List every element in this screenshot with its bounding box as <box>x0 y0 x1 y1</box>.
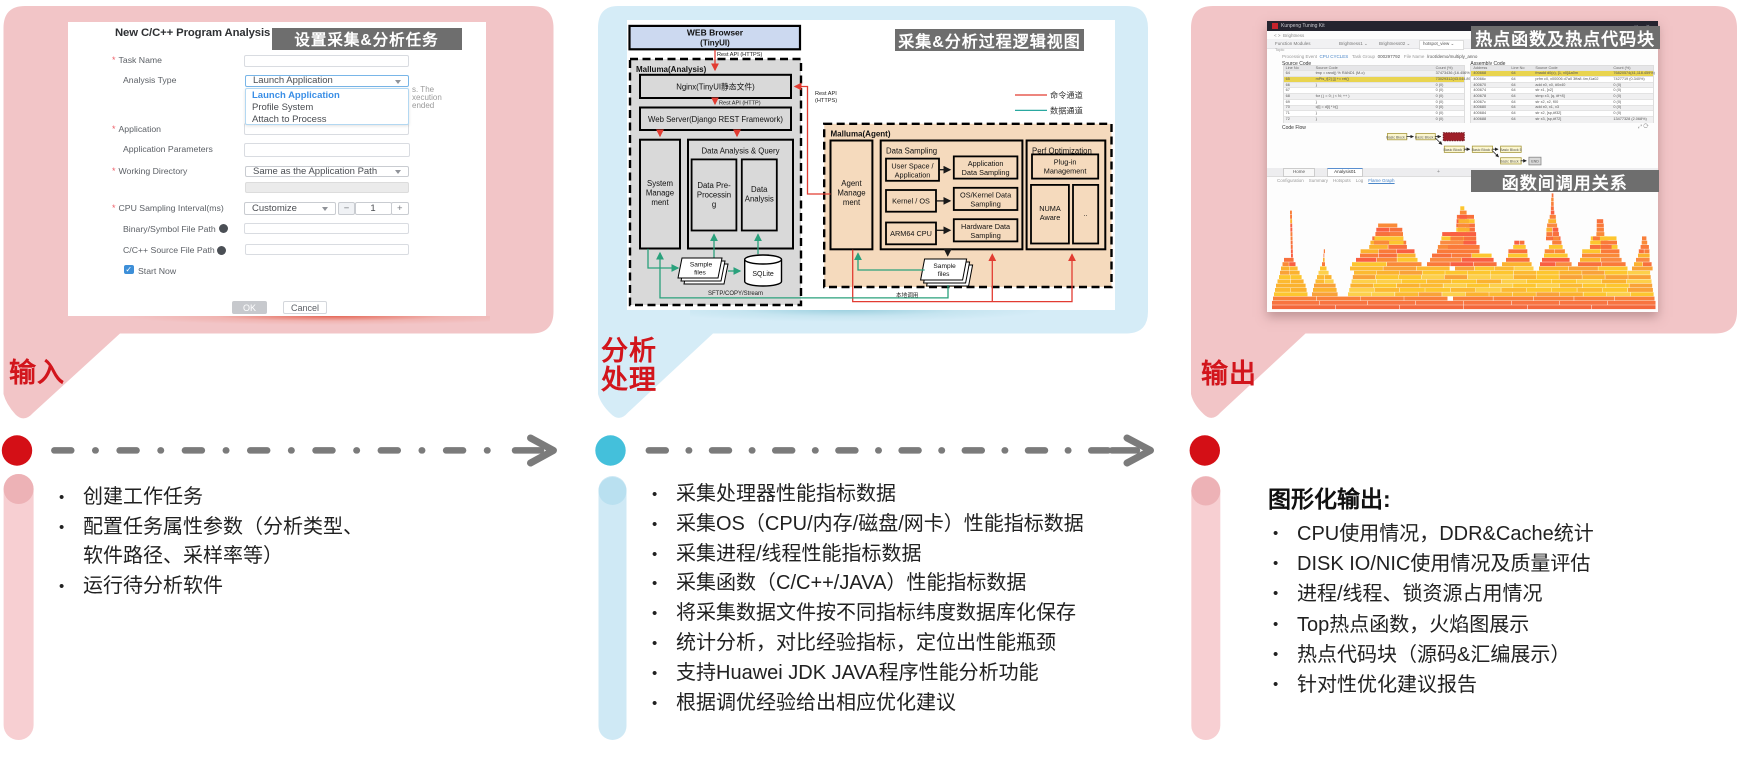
svg-text:Malluma(Analysis): Malluma(Analysis) <box>636 65 707 74</box>
svg-text:WEB Browser: WEB Browser <box>687 28 744 38</box>
svg-text:SFTP/COPY/Stream: SFTP/COPY/Stream <box>708 291 763 297</box>
svg-text:Processin: Processin <box>697 191 731 200</box>
svg-text:Data Analysis & Query: Data Analysis & Query <box>701 147 779 156</box>
svg-text:Sampling: Sampling <box>970 199 1000 208</box>
svg-text:System: System <box>647 179 673 188</box>
svg-text:Nginx(TinyUI静态文件): Nginx(TinyUI静态文件) <box>676 82 755 92</box>
svg-text:Sample: Sample <box>690 262 713 269</box>
svg-text:Kernel / OS: Kernel / OS <box>892 197 930 206</box>
svg-text:Data Sampling: Data Sampling <box>962 168 1010 177</box>
svg-text:Application: Application <box>968 159 1004 168</box>
svg-text:Basic Block 2: Basic Block 2 <box>1415 135 1437 139</box>
svg-text:Rest API (HTTPS): Rest API (HTTPS) <box>717 52 763 58</box>
svg-text:Sample: Sample <box>933 263 956 270</box>
svg-text:Management: Management <box>1044 166 1087 175</box>
svg-text:Rest API: Rest API <box>815 91 837 97</box>
svg-text:Rest API (HTTP): Rest API (HTTP) <box>719 101 761 107</box>
svg-text:END: END <box>1531 160 1539 164</box>
svg-text:Data Sampling: Data Sampling <box>886 147 937 156</box>
svg-text:Application: Application <box>895 171 931 180</box>
svg-text:Aware: Aware <box>1040 213 1061 222</box>
svg-text:OS/Kernel Data: OS/Kernel Data <box>960 190 1012 199</box>
svg-text:本地调用: 本地调用 <box>896 291 918 299</box>
svg-text:Analysis: Analysis <box>745 195 774 204</box>
svg-text:SQLite: SQLite <box>752 271 774 278</box>
svg-text:Manage: Manage <box>646 189 674 198</box>
svg-text:Basic Block 1: Basic Block 1 <box>1386 135 1408 139</box>
svg-text:(HTTPS): (HTTPS) <box>815 98 837 104</box>
svg-text:..: .. <box>1084 209 1088 218</box>
svg-text:Data Pre-: Data Pre- <box>697 181 731 190</box>
svg-text:Basic Block 5: Basic Block 5 <box>1500 148 1522 152</box>
svg-text:(TinyUI): (TinyUI) <box>700 39 730 48</box>
svg-text:Malluma(Agent): Malluma(Agent) <box>831 130 891 139</box>
svg-text:数据通道: 数据通道 <box>1050 105 1083 115</box>
svg-text:ment: ment <box>843 198 861 207</box>
svg-text:ARM64 CPU: ARM64 CPU <box>890 229 932 238</box>
svg-text:NUMA: NUMA <box>1039 204 1061 213</box>
svg-text:Data: Data <box>751 185 768 194</box>
svg-text:Basic Block 7: Basic Block 7 <box>1500 160 1522 164</box>
svg-text:ment: ment <box>651 198 669 207</box>
svg-text:Plug-in: Plug-in <box>1054 157 1077 166</box>
svg-text:Basic Block 4: Basic Block 4 <box>1472 148 1494 152</box>
svg-text:Agent: Agent <box>841 179 862 188</box>
svg-text:Hardware Data: Hardware Data <box>961 222 1011 231</box>
svg-text:Sampling: Sampling <box>970 231 1000 240</box>
svg-text:files: files <box>694 270 706 277</box>
svg-text:Web Server(Django REST Framewo: Web Server(Django REST Framework) <box>648 115 783 124</box>
svg-text:Basic Block 3: Basic Block 3 <box>1444 148 1466 152</box>
svg-text:files: files <box>938 271 950 278</box>
svg-text:命令通道: 命令通道 <box>1050 90 1083 100</box>
svg-text:Manage: Manage <box>837 189 865 198</box>
svg-text:User Space /: User Space / <box>891 162 934 171</box>
svg-text:g: g <box>712 200 716 209</box>
